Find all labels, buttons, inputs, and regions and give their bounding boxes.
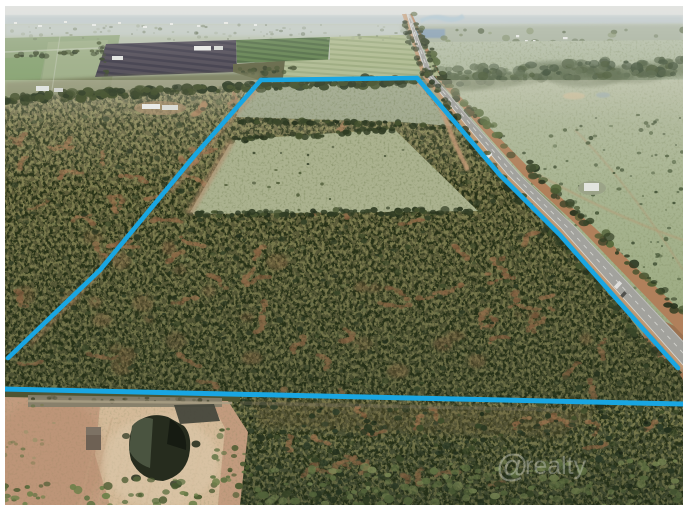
svg-text:@: @ <box>496 448 528 484</box>
svg-text:realty: realty <box>525 452 587 480</box>
